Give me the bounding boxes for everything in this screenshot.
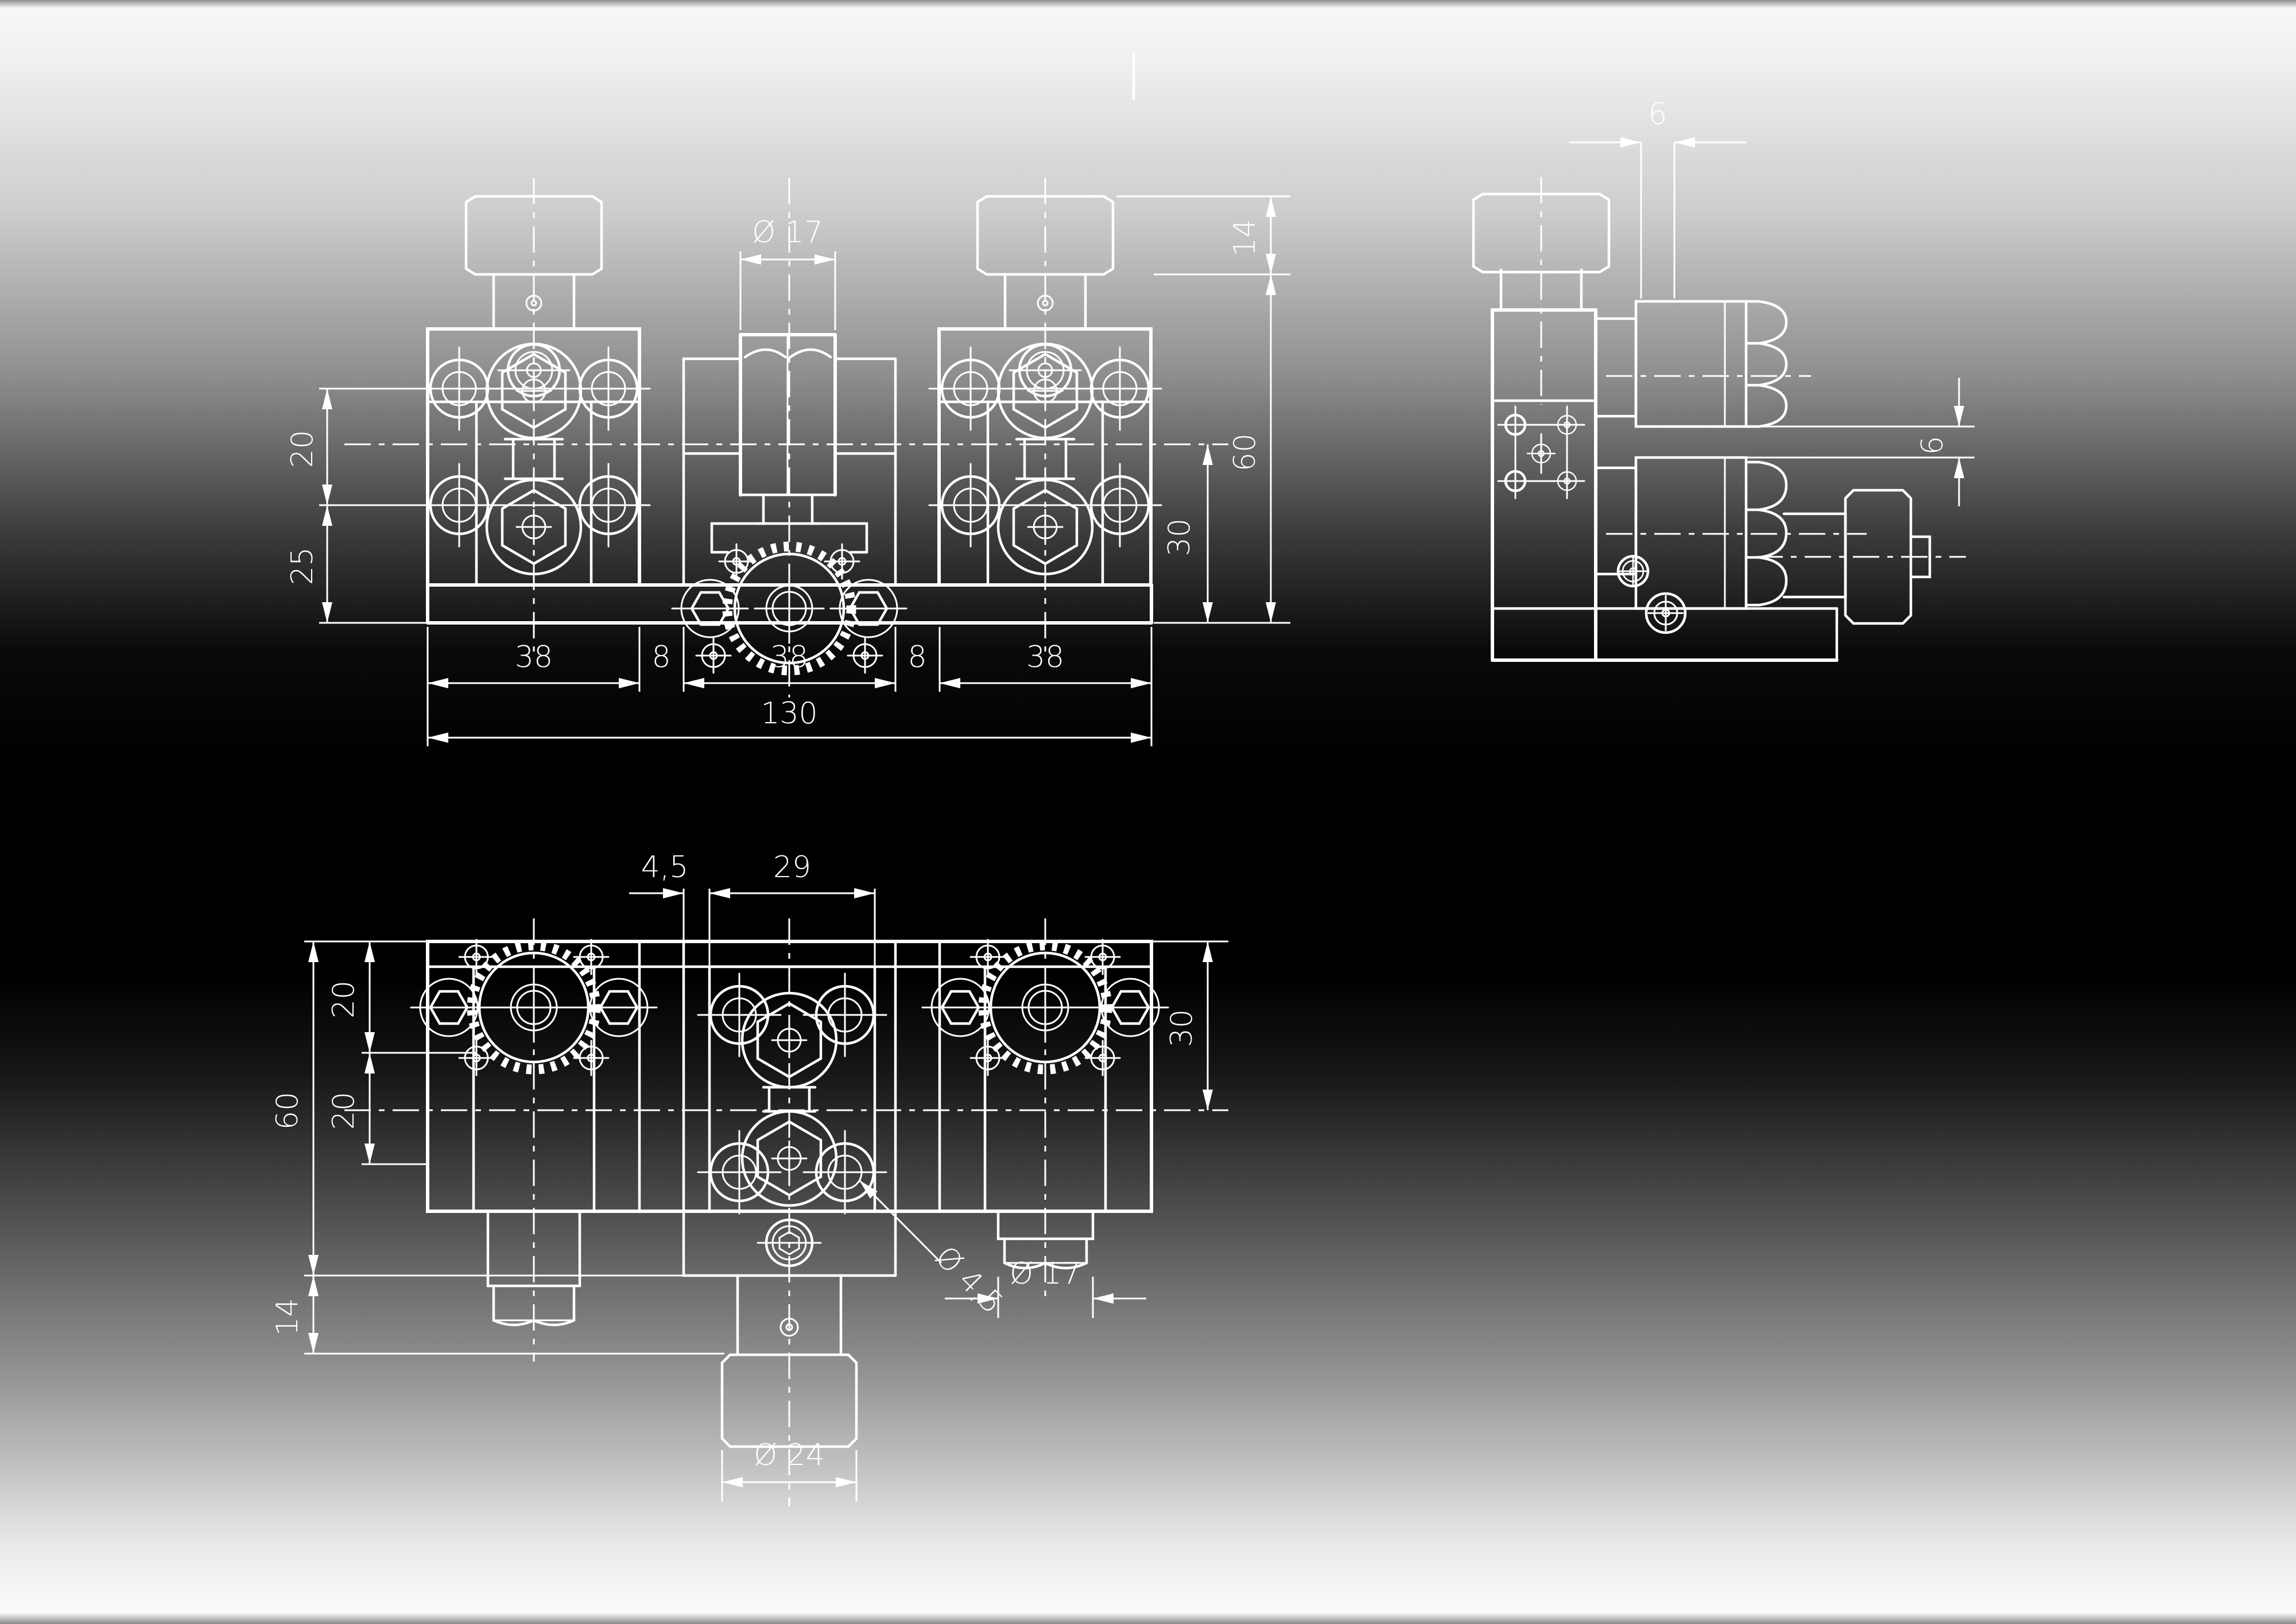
dim-plan-29: 29 xyxy=(773,850,811,885)
dim-front-25: 25 xyxy=(285,547,320,585)
dim-front-20: 20 xyxy=(285,430,320,468)
dim-plan-dia24: Ø 24 xyxy=(754,1438,825,1472)
dim-side-6-top: 6 xyxy=(1648,97,1667,131)
dim-front-8a: 8 xyxy=(651,640,670,675)
cad-drawing: Ø 17 20 25 14 60 30 xyxy=(0,0,2296,1624)
dim-front-38b: 38 xyxy=(770,640,808,675)
dim-side-6-right: 6 xyxy=(1915,436,1950,455)
dim-front-30: 30 xyxy=(1162,518,1197,556)
dim-plan-dia17: Ø 17 xyxy=(1010,1257,1081,1291)
dim-front-dia17: Ø 17 xyxy=(752,215,823,250)
dim-plan-4-5: 4,5 xyxy=(641,850,689,885)
dim-front-60: 60 xyxy=(1228,433,1262,471)
dim-plan-20b: 20 xyxy=(327,1092,361,1130)
dim-front-38a: 38 xyxy=(515,640,553,675)
dim-front-38c: 38 xyxy=(1026,640,1064,675)
dim-plan-20a: 20 xyxy=(327,980,361,1018)
dim-front-8b: 8 xyxy=(907,640,926,675)
gradient-background xyxy=(0,0,2296,1624)
dim-plan-30: 30 xyxy=(1165,1009,1199,1047)
dim-front-130: 130 xyxy=(761,696,817,731)
dim-plan-14: 14 xyxy=(270,1298,305,1336)
dim-plan-60: 60 xyxy=(270,1092,305,1130)
dim-front-14: 14 xyxy=(1228,219,1262,257)
